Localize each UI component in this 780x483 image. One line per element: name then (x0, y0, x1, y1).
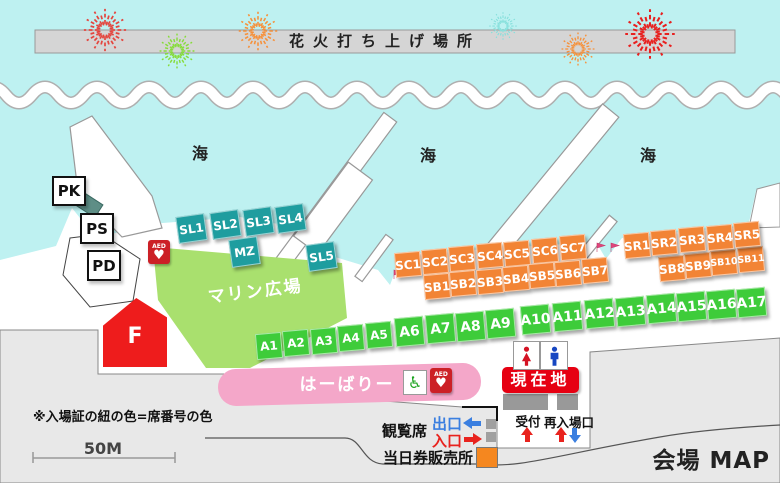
left-arrow-icon (463, 417, 482, 429)
harbary-label: はーばりー (297, 370, 397, 395)
launch-site-label: 花火打ち上げ場所 (35, 30, 735, 53)
sea-label: 海 (633, 142, 663, 162)
seat-sr1: SR1 (623, 232, 651, 259)
seat-a12: A12 (584, 298, 615, 329)
seat-a8: A8 (455, 311, 486, 342)
seat-a6: A6 (394, 316, 425, 347)
aed-icon: AED ♥ (148, 240, 170, 264)
gate-marker-entrance (486, 432, 496, 442)
seat-a7: A7 (425, 313, 456, 344)
seat-sr3: SR3 (678, 226, 706, 253)
sea-label: 海 (413, 142, 443, 162)
seat-sr5: SR5 (733, 221, 761, 248)
heart-icon: ♥ (435, 378, 447, 390)
wheelchair-box: ♿ (403, 370, 427, 395)
legend-ticket-office: 当日券販売所 (383, 447, 473, 468)
map-title: 会場 MAP (640, 441, 770, 475)
seat-sb4: SB4 (502, 265, 530, 292)
seat-sb3: SB3 (476, 268, 504, 295)
down-arrow-icon (569, 427, 581, 443)
scale-label: 50M (70, 439, 136, 458)
seat-a17: A17 (736, 287, 767, 318)
block-f-label: F (103, 324, 167, 349)
restroom-male (540, 341, 568, 370)
note-label: ※入場証の紐の色=席番号の色 (33, 406, 213, 425)
seat-sb11: SB11 (737, 246, 765, 273)
restroom-female (513, 341, 540, 370)
seat-a1: A1 (255, 332, 283, 360)
legend-viewing-seats: 観覧席 (382, 420, 427, 441)
seat-sc4: SC4 (476, 242, 504, 269)
up-arrow-icon (521, 427, 533, 443)
seat-sb5: SB5 (528, 262, 556, 289)
facility-pk: PK (52, 176, 86, 206)
seat-a16: A16 (706, 289, 737, 320)
aed-icon: AED ♥ (430, 368, 452, 393)
gate-bar (557, 394, 578, 410)
seat-a14: A14 (646, 293, 677, 324)
seat-a3: A3 (310, 327, 338, 355)
seat-sr4: SR4 (706, 224, 734, 251)
venue-map: 花火打ち上げ場所 海 海 海 PK PS PD SL1 SL2 SL3 SL4 … (0, 0, 780, 483)
seat-sb2: SB2 (449, 270, 477, 297)
female-icon (520, 346, 533, 366)
seat-a2: A2 (282, 329, 310, 357)
seat-sb1: SB1 (423, 273, 451, 300)
seat-mz: MZ (228, 236, 261, 268)
seat-sc3: SC3 (448, 245, 476, 272)
seat-sc7: SC7 (559, 234, 587, 261)
seat-sr2: SR2 (650, 229, 678, 256)
seat-a13: A13 (615, 296, 646, 327)
facility-pd: PD (87, 250, 121, 281)
right-arrow-icon (463, 433, 482, 445)
seat-sb8: SB8 (658, 255, 686, 282)
seat-sl3: SL3 (242, 206, 274, 237)
seat-sb9: SB9 (684, 252, 712, 279)
gate-marker-exit (486, 419, 496, 429)
seat-a11: A11 (552, 301, 583, 332)
seat-sl2: SL2 (209, 209, 241, 240)
seat-sl4: SL4 (274, 203, 306, 234)
facility-ps: PS (80, 213, 114, 244)
wheelchair-icon: ♿ (408, 373, 422, 392)
sea-label: 海 (185, 140, 215, 160)
current-location-badge: 現在地 (502, 367, 579, 393)
up-arrow-icon (555, 427, 567, 443)
ticket-booth-marker (476, 447, 498, 468)
seat-a5: A5 (365, 321, 393, 349)
seat-a15: A15 (676, 291, 707, 322)
seat-sc5: SC5 (503, 240, 531, 267)
seat-sc2: SC2 (421, 248, 449, 275)
seat-sb10: SB10 (710, 249, 738, 276)
seat-sb7: SB7 (581, 257, 609, 284)
gate-bar (503, 394, 548, 410)
male-icon (548, 346, 561, 366)
seat-sc1: SC1 (394, 251, 422, 278)
seat-sl1: SL1 (175, 213, 207, 244)
seat-a9: A9 (485, 308, 516, 339)
seat-sl5: SL5 (305, 241, 337, 272)
heart-icon: ♥ (153, 250, 165, 262)
seat-sb6: SB6 (554, 260, 582, 287)
seat-sc6: SC6 (531, 237, 559, 264)
seat-a10: A10 (520, 304, 551, 335)
seat-a4: A4 (337, 324, 365, 352)
